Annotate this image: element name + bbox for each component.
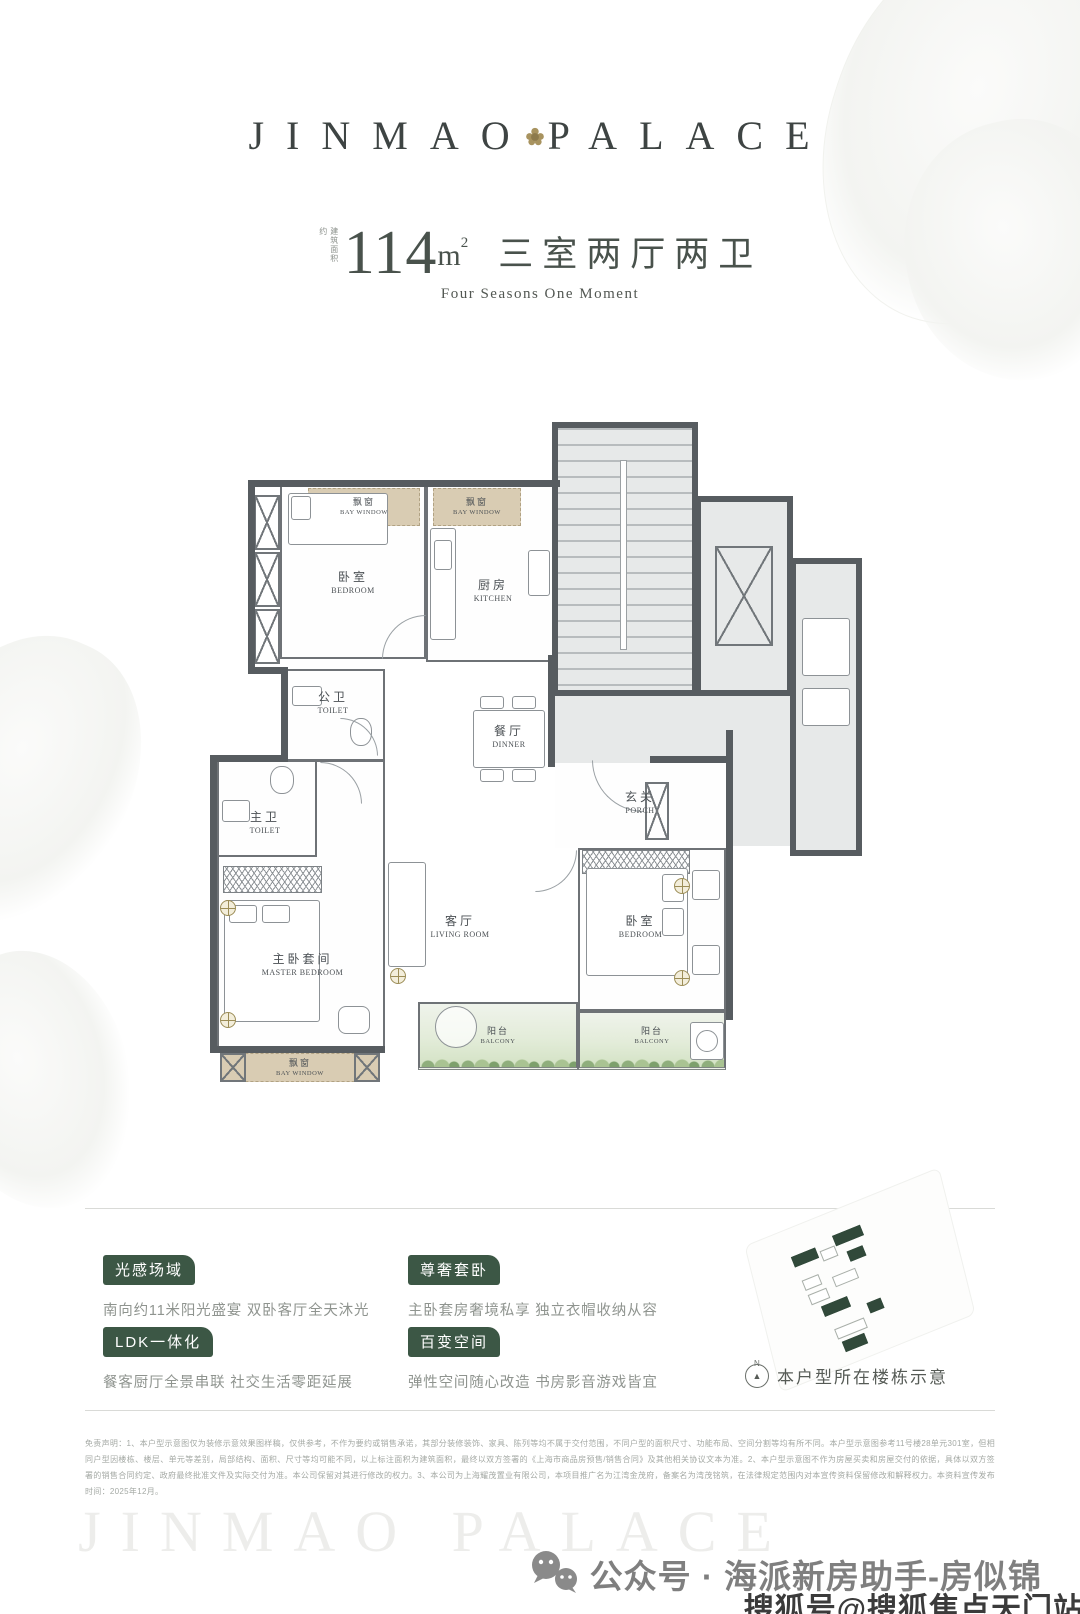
label-bay2: 飘窗BAY WINDOW xyxy=(433,495,521,516)
disclaimer-text: 免责声明：1、本户型示意图仅为装修示意效果图样稿，仅供参考，不作为要约或销售承诺… xyxy=(85,1436,995,1500)
wall-segment xyxy=(650,756,730,763)
area-superscript: 2 xyxy=(461,235,469,251)
label-balcony2: 阳台BALCONY xyxy=(602,1024,702,1045)
label-toilet1: 公卫TOILET xyxy=(288,688,378,715)
brand-logo-right: PALACE xyxy=(548,113,832,158)
floorplan-diagram: 飘窗BAY WINDOW 飘窗BAY WINDOW 卧室BEDROOM 厨房KI… xyxy=(190,400,890,1100)
wechat-icon xyxy=(528,1549,580,1598)
site-boundary xyxy=(744,1167,975,1393)
divider-line xyxy=(85,1410,995,1411)
feature-desc: 主卧套房奢境私享 独立衣帽收纳从容 xyxy=(408,1299,708,1320)
furniture-pillow xyxy=(262,905,290,923)
wall-segment xyxy=(210,755,288,762)
feature-block-light: 光感场域 南向约11米阳光盛宴 双卧客厅全天沐光 xyxy=(103,1255,403,1320)
petal-decoration xyxy=(0,927,166,1233)
toilet-fixture xyxy=(270,766,294,794)
wall-segment xyxy=(248,480,560,487)
elevator-x-icon xyxy=(715,546,773,646)
feature-desc: 南向约11米阳光盛宴 双卧客厅全天沐光 xyxy=(103,1299,403,1320)
furniture-chair xyxy=(512,696,536,709)
furniture-armchair xyxy=(338,1006,370,1034)
siteplan-caption: N▲ 本户型所在楼栋示意 xyxy=(745,1363,948,1388)
feature-badge: LDK一体化 xyxy=(103,1327,213,1357)
area-value: 114 xyxy=(344,225,438,281)
label-master: 主卧套间MASTER BEDROOM xyxy=(230,950,375,977)
feature-badge: 尊奢套卧 xyxy=(408,1255,500,1285)
label-bedroom1: 卧室BEDROOM xyxy=(298,568,408,595)
label-bay3: 飘窗BAY WINDOW xyxy=(220,1056,380,1077)
feature-block-ldk: LDK一体化 餐客厨厅全景串联 社交生活零距延展 xyxy=(103,1327,403,1392)
gold-marker-icon xyxy=(220,1012,236,1028)
label-toilet2: 主卫TOILET xyxy=(220,808,310,835)
poster-page: JINMAOPALACE 建筑面积约 114 m2 三室两厅两卫 Four Se… xyxy=(0,0,1080,1614)
rooms-title: 三室两厅两卫 xyxy=(498,229,762,281)
furniture-nightstand xyxy=(692,870,720,900)
feature-badge: 百变空间 xyxy=(408,1327,500,1357)
label-bay1: 飘窗BAY WINDOW xyxy=(308,495,420,516)
area-title: 建筑面积约 114 m2 三室两厅两卫 xyxy=(0,218,1080,281)
gold-marker-icon xyxy=(390,968,406,984)
door-arc xyxy=(535,850,577,892)
feature-block-flex: 百变空间 弹性空间随心改造 书房影音游戏皆宜 xyxy=(408,1327,708,1392)
label-dinner: 餐厅DINNER xyxy=(473,722,545,749)
stair-rail xyxy=(620,460,627,650)
sohu-label: 搜狐号@搜狐焦点天门站 xyxy=(744,1584,1080,1614)
petal-decoration xyxy=(0,598,182,962)
wardrobe-master xyxy=(223,866,322,893)
furniture-chair xyxy=(512,769,536,782)
brand-emblem-icon xyxy=(524,112,546,159)
feature-block-master: 尊奢套卧 主卧套房奢境私享 独立衣帽收纳从容 xyxy=(408,1255,708,1320)
shaft-x-icon xyxy=(254,552,280,607)
furniture-nightstand xyxy=(692,945,720,975)
furniture-chair xyxy=(480,696,504,709)
wall-segment xyxy=(210,755,217,1053)
wall-segment xyxy=(248,480,255,674)
gold-marker-icon xyxy=(674,970,690,986)
shaft-x-icon xyxy=(254,609,280,664)
area-unit: m2 xyxy=(437,218,468,281)
balcony-plants xyxy=(420,1051,576,1067)
label-bedroom2: 卧室BEDROOM xyxy=(588,912,693,939)
brand-logo-left: JINMAO xyxy=(248,113,531,158)
label-balcony1: 阳台BALCONY xyxy=(448,1024,548,1045)
area-prefix-label: 建筑面积约 xyxy=(318,227,340,271)
furniture-sink xyxy=(434,540,452,570)
label-porch: 玄关PORCH xyxy=(595,788,685,815)
utility-closet xyxy=(802,618,850,676)
feature-desc: 餐客厨厅全景串联 社交生活零距延展 xyxy=(103,1371,403,1392)
wall-segment xyxy=(726,730,733,1020)
compass-icon: N▲ xyxy=(745,1364,769,1388)
label-living: 客厅LIVING ROOM xyxy=(405,912,515,939)
gold-marker-icon xyxy=(220,900,236,916)
tagline: Four Seasons One Moment xyxy=(0,286,1080,303)
brand-logo: JINMAOPALACE xyxy=(0,112,1080,167)
feature-badge: 光感场域 xyxy=(103,1255,195,1285)
utility-closet xyxy=(802,688,850,726)
shaft-x-icon xyxy=(254,495,280,550)
gold-marker-icon xyxy=(674,878,690,894)
furniture-chair xyxy=(480,769,504,782)
label-kitchen: 厨房KITCHEN xyxy=(448,576,538,603)
siteplan-diagram xyxy=(745,1205,995,1365)
wall-segment xyxy=(210,1046,385,1053)
wall-segment xyxy=(281,667,288,762)
feature-desc: 弹性空间随心改造 书房影音游戏皆宜 xyxy=(408,1371,708,1392)
wall-segment xyxy=(548,655,555,767)
siteplan-caption-text: 本户型所在楼栋示意 xyxy=(777,1363,948,1388)
